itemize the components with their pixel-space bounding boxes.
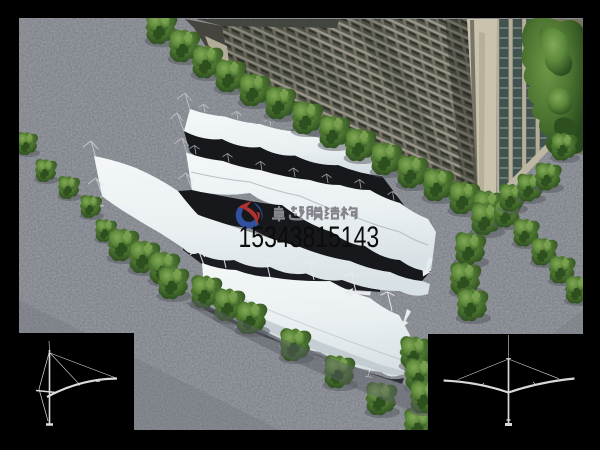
svg-text:15343815143: 15343815143: [239, 220, 380, 253]
